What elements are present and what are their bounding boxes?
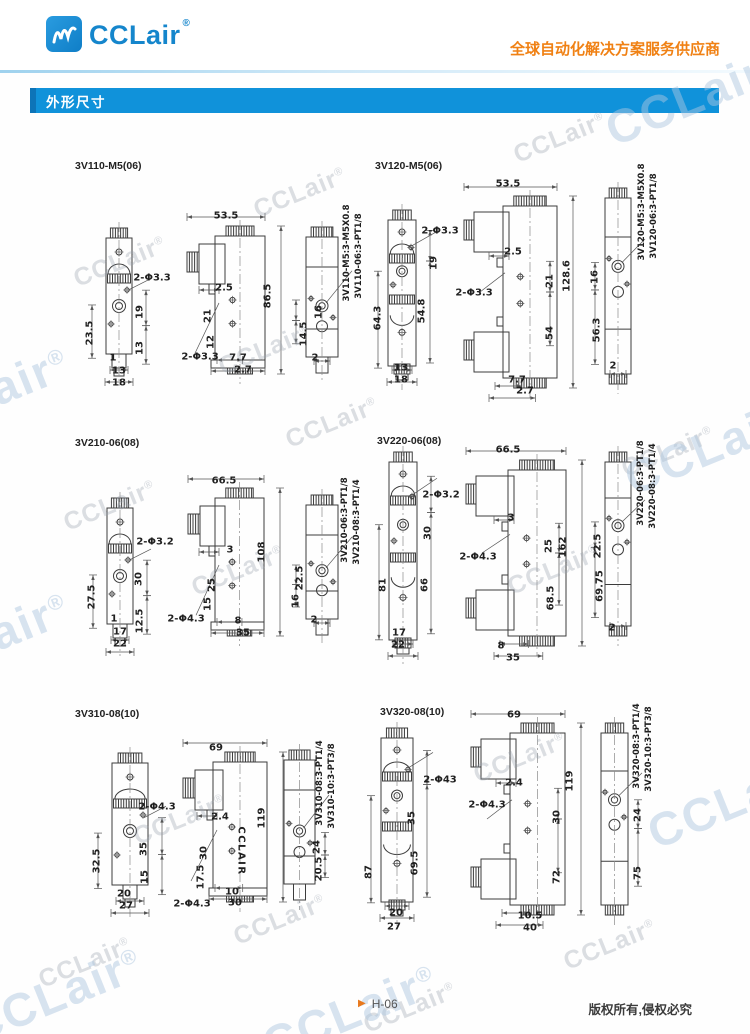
dim-label: 25 — [207, 578, 218, 592]
dim-label: 18 — [394, 375, 408, 386]
page-number: H-06 — [372, 997, 398, 1011]
dim-label: 30 — [423, 526, 434, 540]
dim-label: 81 — [378, 578, 389, 592]
figure-title: 3V220-06(08) — [377, 435, 441, 447]
dim-label: 2-Φ4.3 — [468, 800, 505, 811]
port-thread-label: 3V120-M5:3-M5X0.8 — [637, 164, 647, 261]
dim-label: 2-Φ43 — [423, 775, 457, 786]
dim-label: 69.5 — [410, 851, 421, 876]
dim-label: 66 — [420, 578, 431, 592]
dim-label: 22 — [113, 639, 127, 650]
dim-label: 32.5 — [92, 849, 103, 874]
dim-label: 2-Φ3.3 — [181, 352, 218, 363]
dim-label: 15 — [140, 870, 151, 884]
dim-label: 13 — [135, 341, 146, 355]
dim-label: 35 — [236, 628, 250, 639]
figure-title: 3V310-08(10) — [75, 708, 139, 720]
dim-label: 1 — [111, 614, 118, 625]
dim-label: 8 — [235, 616, 242, 627]
dim-label: 72 — [552, 870, 563, 884]
dim-label: 16 — [590, 270, 601, 284]
dim-label: 2-Φ3.3 — [421, 226, 458, 237]
dim-label: 17 — [113, 627, 127, 638]
figure-title: 3V320-08(10) — [380, 706, 444, 718]
dim-label: 30 — [199, 846, 210, 860]
dim-label: 2 — [311, 615, 318, 626]
dim-label: 2-Φ3.3 — [455, 288, 492, 299]
dim-label: 2 — [609, 623, 616, 634]
dim-label: 40 — [523, 923, 537, 934]
page-number-block: ▶ H-06 — [358, 997, 398, 1011]
page-marker-icon: ▶ — [358, 999, 366, 1009]
dim-label: 2-Φ3.2 — [422, 490, 459, 501]
port-thread-label: 3V220-06:3-PT1/8 — [636, 440, 646, 525]
dim-label: 75 — [633, 866, 644, 880]
dim-label: 66.5 — [496, 445, 521, 456]
dim-label: 13 — [394, 363, 408, 374]
dim-label: 27 — [119, 901, 133, 912]
figure-title: 3V110-M5(06) — [75, 160, 142, 172]
dim-label: 18 — [112, 378, 126, 389]
dim-label: 35 — [139, 842, 150, 856]
dim-label: 16 — [314, 305, 325, 319]
dim-label: 21 — [203, 309, 214, 323]
dim-label: 3 — [227, 545, 234, 556]
dim-label: 25 — [544, 539, 555, 553]
port-thread-label: 3V220-08:3-PT1/4 — [648, 443, 658, 528]
port-thread-label: 3V210-06:3-PT1/8 — [340, 477, 350, 562]
dim-label: 68.5 — [546, 586, 557, 611]
dim-label: 128.6 — [562, 260, 573, 292]
figure-title: 3V210-06(08) — [75, 437, 139, 449]
dim-label: 2.5 — [504, 247, 522, 258]
dim-label: 69.75 — [595, 570, 606, 602]
dim-label: 24 — [312, 840, 323, 854]
port-thread-label: 3V110-06:3-PT1/8 — [354, 213, 364, 298]
dim-label: 13 — [112, 366, 126, 377]
dim-label: 2.7 — [234, 365, 252, 376]
dim-label: 17.5 — [196, 865, 207, 890]
dim-label: 23.5 — [85, 321, 96, 346]
dim-label: 119 — [257, 808, 268, 829]
dim-label: 21 — [545, 274, 556, 288]
dim-label: 2-Φ4.3 — [167, 614, 204, 625]
dim-label: 30 — [552, 810, 563, 824]
port-thread-label: 3V310-10:3-PT3/8 — [327, 743, 337, 828]
dim-label: 3 — [508, 513, 515, 524]
dim-label: 27.5 — [87, 585, 98, 610]
dim-label: 69 — [209, 743, 223, 754]
dim-label: 108 — [257, 542, 268, 563]
dim-label: 1 — [110, 353, 117, 364]
dim-label: 2-Φ4.3 — [173, 899, 210, 910]
port-thread-label: 3V320-08:3-PT1/4 — [632, 703, 642, 788]
dim-label: 15 — [203, 597, 214, 611]
dim-label: 8 — [498, 641, 505, 652]
dim-label: 24 — [633, 808, 644, 822]
dim-label: 64.3 — [373, 306, 384, 331]
dim-label: 35 — [407, 811, 418, 825]
port-thread-label: 3V120-06:3-PT1/8 — [649, 173, 659, 258]
port-thread-label: 3V320-10:3-PT3/8 — [644, 706, 654, 791]
dim-label: 19 — [135, 305, 146, 319]
dim-label: 16 — [291, 594, 302, 608]
dim-label: 22.5 — [593, 534, 604, 559]
dim-label: 14.5 — [299, 322, 310, 347]
datasheet-page: CCLair ® 全球自动化解决方案服务供应商 外形尺寸 CCLair®CCLa… — [0, 0, 750, 1034]
dim-label: 87 — [364, 865, 375, 879]
dim-label: 20.5 — [314, 857, 325, 882]
dim-label: 2 — [312, 353, 319, 364]
dim-label: 2 — [610, 361, 617, 372]
dim-label: 30 — [134, 572, 145, 586]
dim-label: 2.5 — [215, 283, 233, 294]
port-thread-label: 3V310-08:3-PT1/4 — [315, 740, 325, 825]
dim-label: 54 — [545, 326, 556, 340]
dim-label: 20 — [117, 889, 131, 900]
dim-label: 7.7 — [508, 375, 526, 386]
dim-label: 2.7 — [516, 386, 534, 397]
figure-title: 3V120-M5(06) — [375, 160, 442, 172]
copyright-text: 版权所有,侵权必究 — [589, 999, 692, 1018]
dim-label: 2-Φ4.3 — [138, 802, 175, 813]
dim-label: 2.4 — [505, 778, 523, 789]
dim-label: 66.5 — [212, 476, 237, 487]
dim-label: CCLAIR — [236, 826, 247, 875]
dim-label: 17 — [392, 628, 406, 639]
dim-label: 2.4 — [211, 812, 229, 823]
dim-label: 69 — [507, 710, 521, 721]
dim-label: 22 — [391, 640, 405, 651]
dim-label: 53.5 — [496, 179, 521, 190]
dim-label: 2-Φ3.2 — [136, 537, 173, 548]
dim-label: 10 — [225, 887, 239, 898]
dim-label: 56.3 — [592, 318, 603, 343]
dim-label: 53.5 — [214, 211, 239, 222]
port-thread-label: 3V210-08:3-PT1/4 — [352, 479, 362, 564]
dim-label: 20 — [389, 908, 403, 919]
dim-label: 7.7 — [229, 353, 247, 364]
dim-label: 35 — [506, 653, 520, 664]
dim-label: 162 — [558, 537, 569, 558]
dim-label: 12 — [206, 335, 217, 349]
dim-label: 2-Φ3.3 — [133, 273, 170, 284]
dim-label: 27 — [387, 922, 401, 933]
dim-label: 86.5 — [263, 284, 274, 309]
dim-label: 2-Φ4.3 — [459, 552, 496, 563]
dim-label: 54.8 — [417, 299, 428, 324]
dim-label: 22.5 — [295, 566, 306, 591]
port-thread-label: 3V110-M5:3-M5X0.8 — [342, 205, 352, 302]
dim-label: 10.5 — [518, 911, 543, 922]
dim-label: 12.5 — [135, 609, 146, 634]
dim-label: 119 — [565, 771, 576, 792]
dim-label: 19 — [429, 256, 440, 270]
dim-label: 30 — [228, 898, 242, 909]
